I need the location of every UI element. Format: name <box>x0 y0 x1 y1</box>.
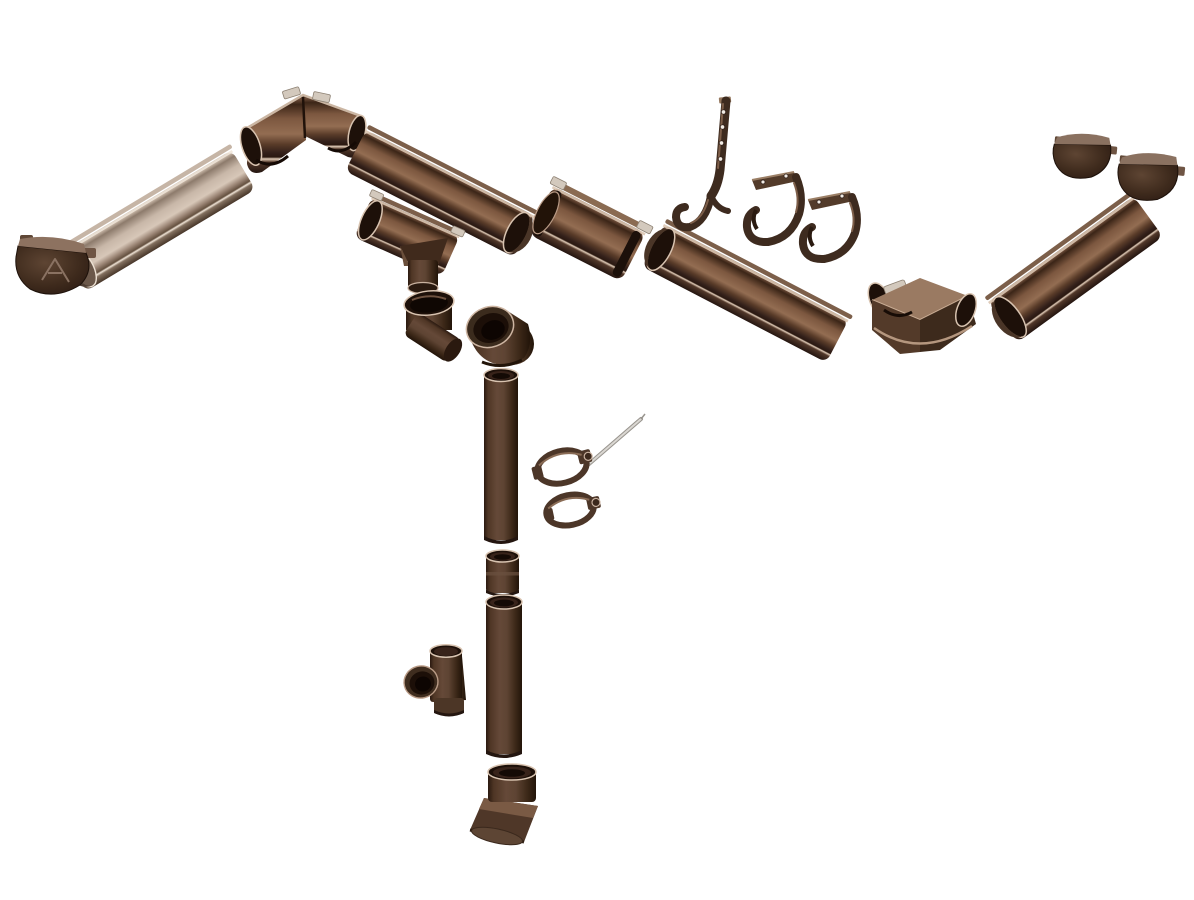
gutter-bracket-1 <box>747 172 801 242</box>
pipe-elbow-1 <box>403 288 466 365</box>
downpipe-upper <box>484 369 518 545</box>
gutter-bracket-2 <box>803 192 857 259</box>
pipe-tee <box>401 645 466 717</box>
gutter-union-connector <box>525 176 653 283</box>
gutter-corner-external <box>864 278 981 354</box>
downpipe-lower <box>486 595 522 758</box>
end-cap-right-1 <box>1050 130 1118 182</box>
gutter-system-illustration <box>0 0 1194 900</box>
pipe-clamp-2 <box>541 489 603 530</box>
pipe-clamp-1 <box>529 414 645 490</box>
product-image <box>0 0 1194 900</box>
pipe-shoe <box>470 764 538 848</box>
pipe-coupler <box>486 550 519 597</box>
gutter-section-right <box>980 190 1165 346</box>
gutter-section-main <box>637 216 854 364</box>
rafter-hook <box>676 96 731 227</box>
fixing-screw <box>583 414 645 474</box>
pipe-elbow-2 <box>461 300 534 366</box>
gutter-corner-internal <box>236 87 369 173</box>
